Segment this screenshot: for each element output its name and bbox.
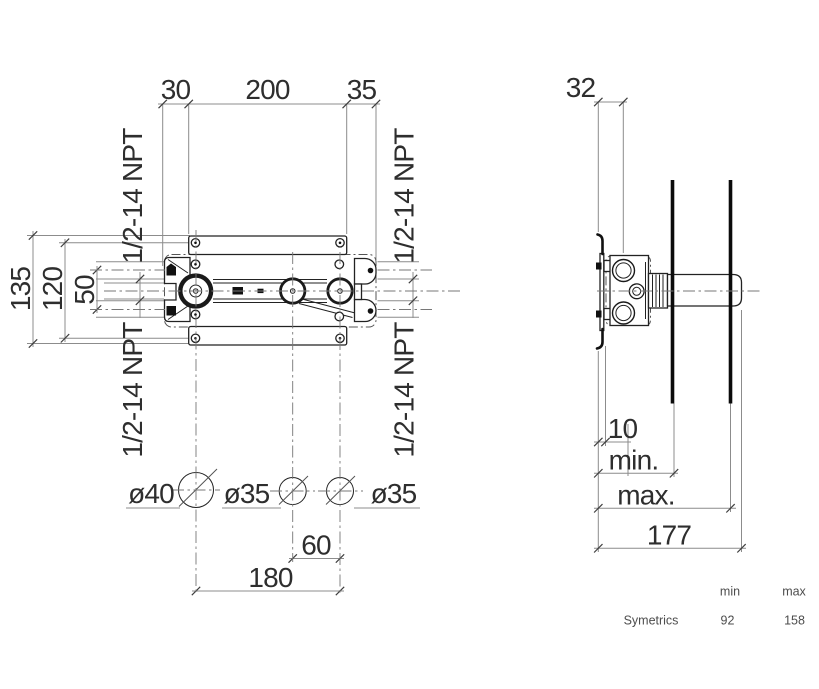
front-right-upper-port (368, 268, 374, 274)
front-diagonal-linkage (299, 299, 357, 318)
table-row-label: Symetrics (624, 614, 679, 628)
npt-label-top-right: 1/2-14 NPT (389, 128, 420, 264)
dim-total-177: 177 (647, 520, 692, 551)
npt-label-bottom-right: 1/2-14 NPT (389, 322, 420, 458)
npt-label-top-left: 1/2-14 NPT (117, 128, 148, 264)
front-bottom-mounting-bar (189, 327, 347, 346)
side-view (596, 180, 742, 404)
table-col-max: max (782, 585, 806, 599)
npt-label-bottom-left: 1/2-14 NPT (117, 322, 148, 458)
table-value-min: 92 (721, 614, 735, 628)
table-col-min: min (720, 585, 740, 599)
side-top-dimension-lines (594, 102, 627, 253)
label-min: min. (609, 445, 659, 476)
dim-height-50: 50 (69, 275, 100, 305)
body-screw (335, 260, 344, 269)
technical-drawing-page: 30 200 35 32 135 120 50 1/2-14 NPT 1/2-1… (0, 0, 819, 689)
screw-center (194, 313, 197, 316)
dim-spacing-60: 60 (301, 530, 331, 561)
minmax-table: min max Symetrics 92 158 (624, 585, 807, 628)
dim-spacing-180: 180 (248, 562, 293, 593)
hole-diameter-35-middle: ø35 (224, 478, 270, 509)
dim-height-120: 120 (37, 267, 68, 312)
body-screw (335, 312, 344, 321)
dim-height-135: 135 (5, 267, 36, 312)
hole-diameter-35-right: ø35 (371, 478, 417, 509)
dim-top-left: 30 (161, 74, 191, 105)
dimension-labels: 30 200 35 32 135 120 50 1/2-14 NPT 1/2-1… (5, 72, 691, 593)
installation-drawing: 30 200 35 32 135 120 50 1/2-14 NPT 1/2-1… (0, 0, 819, 689)
front-top-mounting-bar (189, 236, 347, 255)
side-plate-lug (596, 311, 602, 318)
table-value-max: 158 (784, 614, 805, 628)
label-max: max. (617, 480, 674, 511)
dim-depth-10: 10 (608, 413, 638, 444)
front-left-lower-port (167, 306, 177, 316)
side-plate-lug (596, 263, 602, 270)
dim-top-center: 200 (245, 74, 290, 105)
side-bracket-hook-top (598, 235, 603, 255)
screw-center (339, 242, 342, 245)
dim-top-right: 35 (347, 74, 377, 105)
side-bracket-hook-bottom (597, 329, 603, 349)
dim-offset-32: 32 (566, 72, 596, 103)
front-right-lower-port (368, 308, 374, 314)
hole-diameter-40: ø40 (128, 478, 174, 509)
front-right-block-mid (355, 284, 362, 300)
